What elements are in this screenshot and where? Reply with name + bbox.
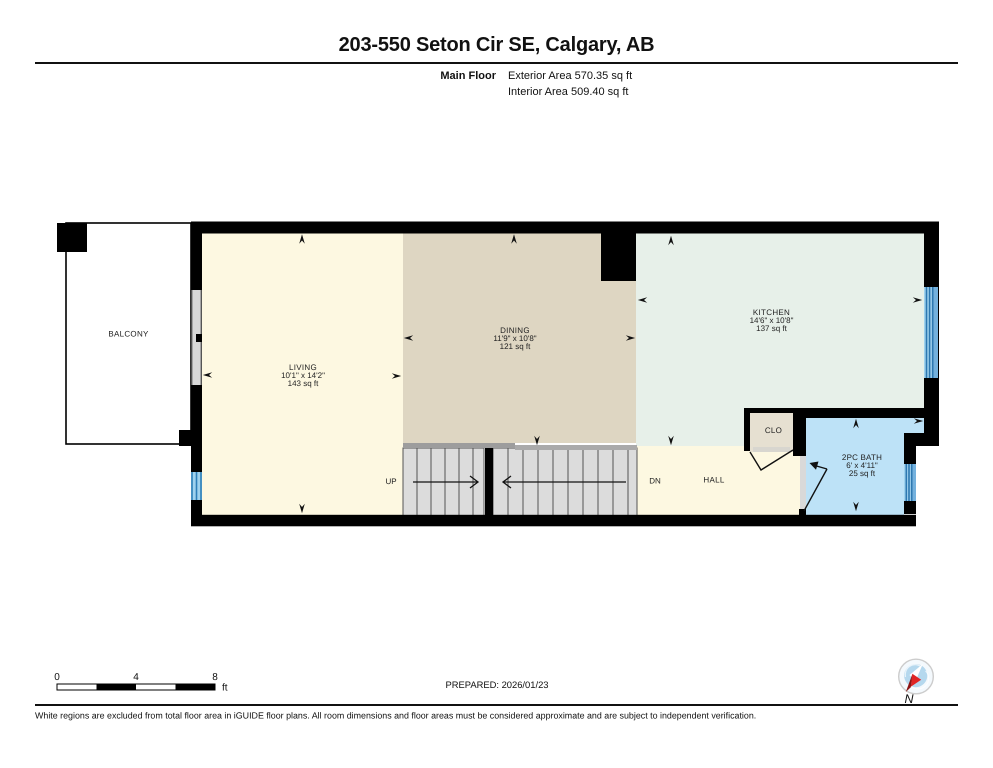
- svg-text:PREPARED: 2026/01/23: PREPARED: 2026/01/23: [445, 679, 548, 690]
- svg-text:ft: ft: [222, 683, 228, 694]
- svg-text:25 sq ft: 25 sq ft: [849, 469, 876, 478]
- svg-text:UP: UP: [385, 477, 396, 486]
- svg-text:4: 4: [133, 672, 139, 683]
- svg-text:HALL: HALL: [703, 476, 724, 485]
- svg-text:White regions are excluded fro: White regions are excluded from total fl…: [35, 711, 756, 721]
- svg-text:137 sq ft: 137 sq ft: [756, 324, 787, 333]
- svg-text:DN: DN: [649, 477, 661, 486]
- svg-text:8: 8: [212, 672, 218, 683]
- svg-text:121 sq ft: 121 sq ft: [500, 342, 531, 351]
- svg-text:CLO: CLO: [765, 426, 782, 435]
- svg-text:0: 0: [54, 672, 60, 683]
- svg-text:143 sq ft: 143 sq ft: [288, 379, 319, 388]
- svg-text:N: N: [904, 692, 914, 706]
- svg-text:BALCONY: BALCONY: [108, 330, 149, 339]
